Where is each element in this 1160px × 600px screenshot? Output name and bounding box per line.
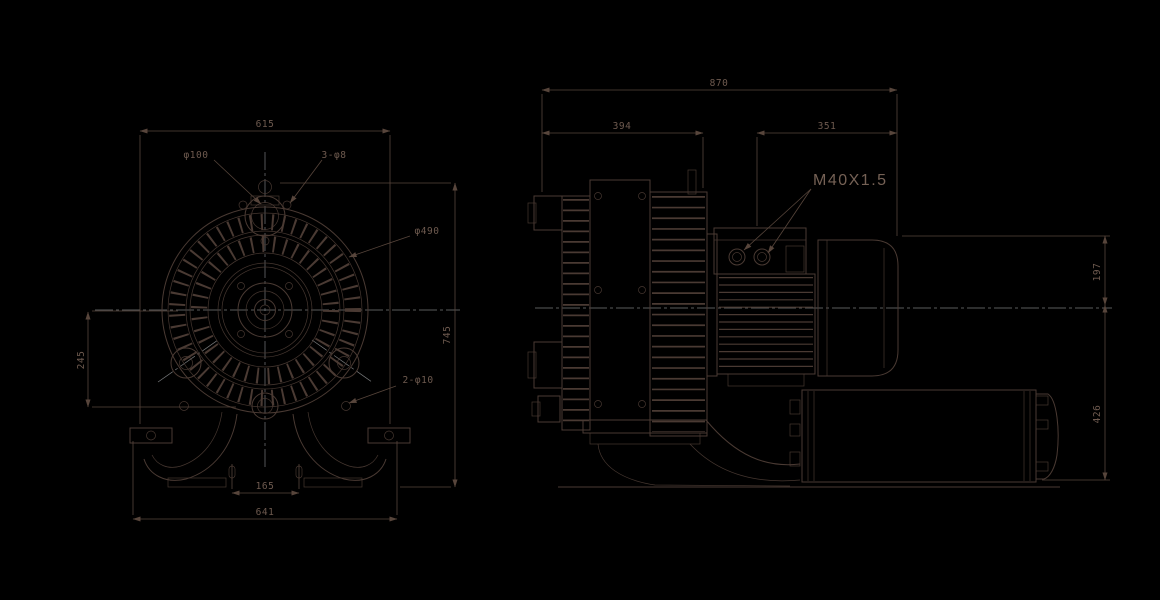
cover-bolt-icon <box>595 287 602 294</box>
motor-adapter-flange <box>707 234 717 376</box>
muffler-end-cap <box>1036 394 1058 479</box>
hub-bolt-icon <box>238 331 245 338</box>
centerlines-front <box>95 152 460 468</box>
foot-hole-icon <box>180 402 189 411</box>
housing-fin-stack-main <box>650 170 707 436</box>
inlet-bolt-icon <box>239 201 247 209</box>
cover-bolt-icon <box>639 287 646 294</box>
dim-pump-section-length: 394 <box>613 121 632 132</box>
dim-overall-width: 641 <box>256 507 275 518</box>
hub-bolt-icon <box>286 331 293 338</box>
housing-cover-plate <box>590 180 650 420</box>
port-stubs-left <box>528 196 562 422</box>
cover-bolt-icon <box>595 193 602 200</box>
cover-bolt-icon <box>639 401 646 408</box>
foot-hole-icon <box>147 431 156 440</box>
hub-bolt-icon <box>238 283 245 290</box>
hub-bolt-icon <box>286 283 293 290</box>
dim-foot-hole-spacing: 165 <box>256 481 275 492</box>
side-view: 870 394 351 M40X1.5 197 426 <box>528 78 1112 487</box>
dim-front-top-width: 615 <box>256 119 275 130</box>
dim-motor-section-length: 351 <box>818 121 837 132</box>
cable-gland-icon <box>729 249 745 265</box>
silencer-muffler <box>790 390 1058 482</box>
dim-inlet-diameter: φ100 <box>184 150 209 161</box>
dim-center-to-base: 245 <box>76 351 87 370</box>
mounting-feet <box>130 402 410 488</box>
label-cable-gland-thread: M40X1.5 <box>813 172 888 189</box>
cover-bolt-icon <box>595 401 602 408</box>
cable-gland-icon <box>754 249 770 265</box>
housing-fin-stack-left <box>562 196 590 430</box>
front-view: 615 φ100 3-φ8 φ490 2-φ10 245 745 <box>76 119 460 519</box>
dim-overall-length: 870 <box>710 78 729 89</box>
cover-bolt-icon <box>639 193 646 200</box>
front-dimensions: 615 φ100 3-φ8 φ490 2-φ10 245 745 <box>76 119 455 519</box>
motor-foot <box>728 374 804 386</box>
blower-engineering-drawing: 615 φ100 3-φ8 φ490 2-φ10 245 745 <box>0 0 1160 600</box>
dim-inlet-bolt-holes: 3-φ8 <box>322 150 347 161</box>
breather-pipe <box>688 170 696 194</box>
motor <box>707 228 815 386</box>
dim-center-to-top: 197 <box>1092 263 1103 282</box>
inlet-bolt-icon <box>283 201 291 209</box>
foot-hole-icon <box>385 431 394 440</box>
dim-mount-holes: 2-φ10 <box>402 375 433 386</box>
dim-overall-height: 745 <box>442 326 453 345</box>
dim-impeller-diameter: φ490 <box>415 226 440 237</box>
outlet-elbow-and-base <box>558 420 1060 487</box>
technical-drawing-canvas: 615 φ100 3-φ8 φ490 2-φ10 245 745 <box>0 0 1160 600</box>
dim-center-to-bottom: 426 <box>1092 405 1103 424</box>
